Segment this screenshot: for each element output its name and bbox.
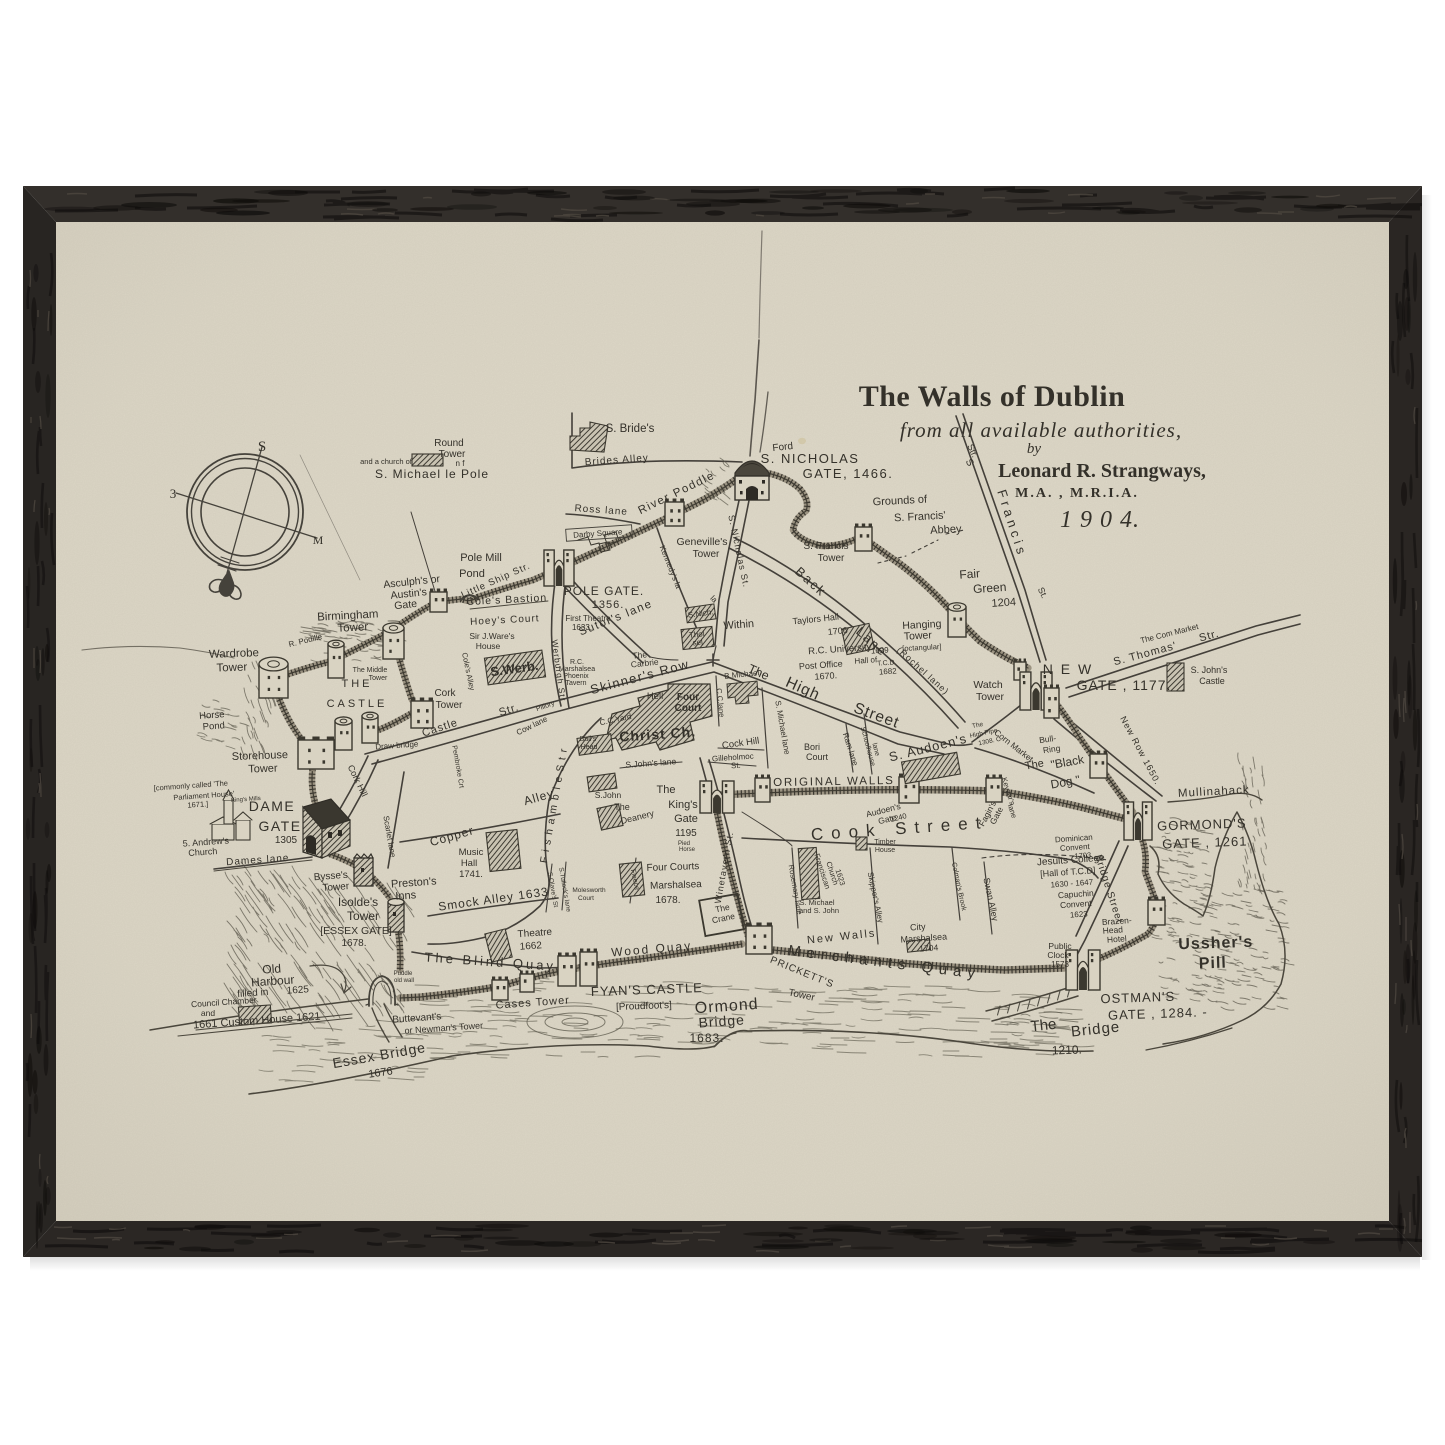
svg-text:Tower: Tower: [322, 881, 350, 894]
svg-text:Bull's: Bull's: [580, 736, 597, 743]
svg-text:GATE, 1466.: GATE, 1466.: [803, 466, 894, 481]
svg-text:The: The: [614, 802, 630, 812]
svg-text:Marshalsea: Marshalsea: [650, 879, 702, 892]
svg-text:Court: Court: [806, 752, 829, 762]
svg-text:1305: 1305: [275, 835, 298, 846]
svg-text:Inns: Inns: [395, 889, 417, 902]
svg-text:Pond: Pond: [459, 568, 485, 580]
svg-text:S. Francis: S. Francis: [803, 541, 848, 552]
svg-text:1704: 1704: [919, 942, 939, 953]
svg-text:GATE: GATE: [258, 818, 301, 834]
svg-text:The Walls of Dublin: The Walls of Dublin: [859, 380, 1126, 413]
svg-text:Sir J.Ware's: Sir J.Ware's: [469, 631, 514, 641]
svg-text:and a church of: and a church of: [360, 457, 413, 466]
svg-text:Hall: Hall: [461, 858, 477, 869]
svg-text:Wardrobe: Wardrobe: [209, 647, 259, 661]
svg-text:Hell: Hell: [647, 691, 663, 702]
svg-text:M: M: [313, 533, 324, 547]
svg-text:Gate: Gate: [394, 598, 418, 612]
svg-text:Hall of: Hall of: [854, 655, 878, 666]
svg-text:Horse: Horse: [679, 847, 696, 853]
svg-text:Tower: Tower: [818, 553, 845, 564]
svg-text:[Proudfoot's]: [Proudfoot's]: [616, 1000, 672, 1013]
svg-text:Fair: Fair: [959, 566, 981, 581]
svg-text:House: House: [476, 641, 501, 651]
svg-text:and: and: [201, 1008, 215, 1018]
svg-text:St.: St.: [731, 761, 741, 771]
svg-text:DAME: DAME: [249, 798, 295, 814]
svg-text:1356.: 1356.: [592, 599, 625, 611]
svg-text:Tower: Tower: [347, 909, 379, 923]
svg-text:S. Bride's: S. Bride's: [606, 423, 655, 435]
svg-text:Within: Within: [723, 618, 754, 632]
svg-text:1683.: 1683.: [689, 1031, 724, 1045]
svg-text:Marshalsea: Marshalsea: [559, 666, 595, 673]
svg-text:N E W: N E W: [1043, 661, 1093, 677]
svg-text:1706: 1706: [827, 625, 848, 637]
svg-text:GATE , 1177.: GATE , 1177.: [1077, 677, 1172, 693]
svg-text:1662: 1662: [519, 940, 542, 953]
svg-text:1625: 1625: [286, 984, 309, 997]
svg-text:3: 3: [170, 486, 177, 501]
svg-text:S. John's: S. John's: [1191, 665, 1228, 675]
svg-text:The Middle: The Middle: [353, 667, 388, 674]
svg-text:Tower: Tower: [337, 621, 368, 635]
svg-text:Ford: Ford: [772, 441, 794, 454]
svg-text:1671.]: 1671.]: [187, 799, 208, 809]
svg-text:Tower: Tower: [248, 762, 278, 775]
svg-text:Four: Four: [677, 692, 699, 703]
svg-text:Tower: Tower: [693, 549, 720, 560]
svg-text:ORIGINAL WALLS: ORIGINAL WALLS: [773, 775, 895, 789]
svg-text:Tower: Tower: [216, 661, 247, 674]
svg-text:Ussher's: Ussher's: [1178, 934, 1254, 954]
svg-text:1678.: 1678.: [655, 895, 680, 906]
svg-text:Cork: Cork: [434, 688, 456, 699]
svg-text:GATE , 1261: GATE , 1261: [1162, 834, 1248, 852]
svg-text:R.C.: R.C.: [570, 659, 584, 666]
svg-text:1204: 1204: [991, 596, 1016, 610]
svg-text:Green: Green: [973, 580, 1007, 596]
svg-text:Tavern: Tavern: [565, 680, 586, 687]
svg-text:Round: Round: [434, 438, 463, 449]
svg-text:Pond: Pond: [202, 720, 225, 733]
svg-text:Timber: Timber: [874, 839, 896, 846]
svg-text:Tower: Tower: [369, 675, 388, 682]
svg-text:CASTLE: CASTLE: [327, 698, 388, 710]
svg-text:filled in: filled in: [237, 987, 269, 1000]
svg-text:Watch: Watch: [973, 679, 1003, 691]
svg-text:1195: 1195: [675, 828, 697, 839]
svg-text:Isolde's: Isolde's: [338, 895, 378, 909]
svg-text:Court: Court: [675, 703, 702, 714]
svg-text:and S. John: and S. John: [799, 906, 839, 915]
svg-text:Molesworth: Molesworth: [572, 887, 606, 894]
svg-text:GORMOND'S: GORMOND'S: [1157, 815, 1247, 833]
svg-text:The: The: [657, 784, 676, 796]
svg-text:1678.: 1678.: [341, 938, 366, 949]
svg-text:Geneville's: Geneville's: [676, 536, 727, 548]
svg-text:Clock: Clock: [1047, 950, 1069, 960]
svg-text:The: The: [1030, 1016, 1057, 1036]
svg-text:Bori: Bori: [804, 742, 820, 752]
svg-text:Church: Church: [188, 846, 218, 858]
svg-text:Head: Head: [581, 744, 598, 751]
svg-text:1573: 1573: [1051, 960, 1069, 969]
svg-text:1623: 1623: [1070, 909, 1089, 919]
svg-text:Pill: Pill: [1199, 955, 1228, 973]
svg-text:King's: King's: [668, 799, 698, 811]
svg-text:Pole Mill: Pole Mill: [460, 552, 502, 564]
svg-text:from all available authorities: from all available authorities,: [900, 418, 1182, 442]
svg-text:Tower: Tower: [436, 700, 463, 711]
svg-text:City: City: [910, 921, 927, 932]
svg-text:OSTMAN'S: OSTMAN'S: [1100, 989, 1175, 1007]
svg-text:S.John: S.John: [595, 790, 622, 800]
svg-text:by: by: [1027, 441, 1042, 457]
svg-text:1741.: 1741.: [459, 869, 483, 880]
svg-text:Phoenix: Phoenix: [563, 673, 589, 680]
svg-text:1670.: 1670.: [814, 670, 837, 682]
svg-text:Hotel: Hotel: [1107, 933, 1128, 944]
svg-text:Gate: Gate: [674, 813, 698, 825]
svg-text:M.A. , M.R.I.A.: M.A. , M.R.I.A.: [1015, 486, 1139, 501]
svg-text:Puddle: Puddle: [394, 971, 413, 977]
svg-text:Castle: Castle: [1199, 676, 1225, 686]
svg-text:sel: sel: [692, 637, 703, 647]
svg-text:S: S: [258, 439, 266, 455]
svg-text:1 9 0 4.: 1 9 0 4.: [1060, 507, 1140, 533]
svg-text:Tower: Tower: [976, 691, 1005, 703]
svg-text:Leonard R. Strangways,: Leonard R. Strangways,: [998, 460, 1206, 482]
svg-text:old wall: old wall: [394, 978, 414, 984]
svg-text:Music: Music: [459, 847, 484, 858]
svg-text:Court: Court: [578, 895, 594, 902]
svg-text:POLE GATE.: POLE GATE.: [564, 584, 644, 598]
svg-text:Storehouse: Storehouse: [232, 749, 289, 763]
svg-text:Abbey: Abbey: [930, 523, 962, 537]
svg-text:1682: 1682: [879, 666, 898, 676]
svg-text:House: House: [875, 847, 895, 854]
svg-text:Bridge: Bridge: [698, 1011, 745, 1030]
svg-text:S. Michael le Pole: S. Michael le Pole: [375, 467, 489, 481]
svg-text:[ESSEX GATE]: [ESSEX GATE]: [320, 925, 392, 937]
svg-text:Tower: Tower: [904, 629, 933, 642]
svg-text:1210.: 1210.: [1052, 1042, 1083, 1057]
svg-text:Four Courts: Four Courts: [646, 861, 699, 874]
